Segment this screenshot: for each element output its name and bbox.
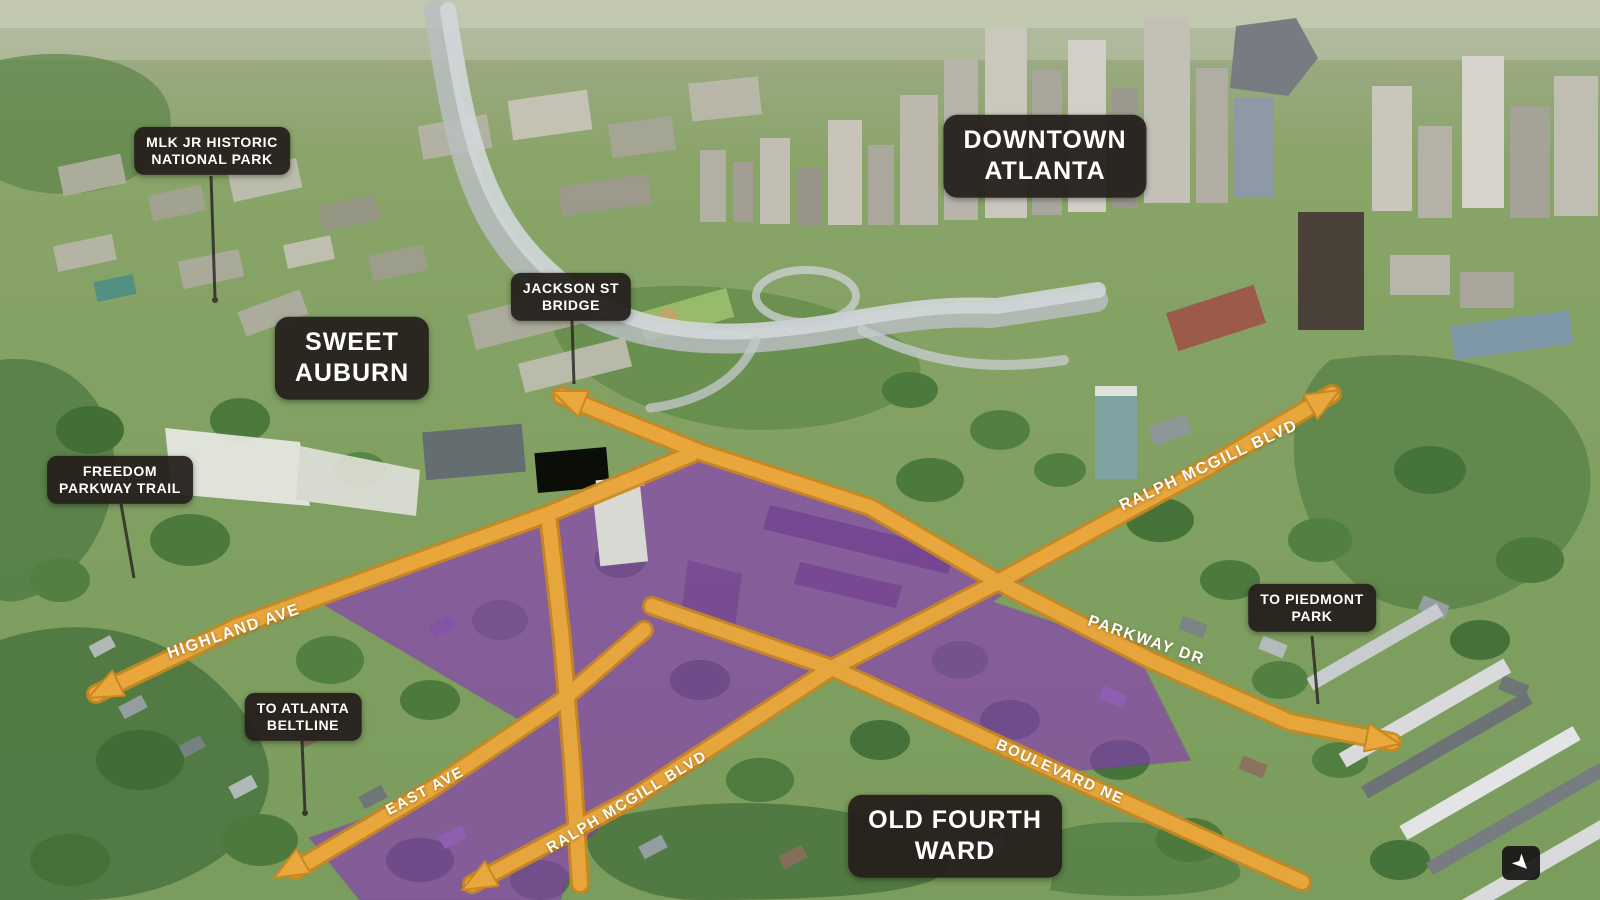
label-to-atlanta-beltline: TO ATLANTA BELTLINE	[245, 693, 362, 741]
aerial-map: MLK JR HISTORIC NATIONAL PARK DOWNTOWN A…	[0, 0, 1600, 900]
label-jackson-st-bridge: JACKSON ST BRIDGE	[511, 273, 631, 321]
downtown-skyline	[700, 18, 1598, 360]
pointer-jackson	[572, 320, 574, 384]
label-sweet-auburn: SWEET AUBURN	[275, 317, 429, 400]
se-arrow-badge: ➤	[1502, 846, 1540, 880]
pointer-freedom	[121, 504, 134, 578]
se-arrow-icon: ➤	[1507, 849, 1535, 877]
label-downtown-atlanta: DOWNTOWN ATLANTA	[943, 115, 1146, 198]
label-freedom-parkway-trail: FREEDOM PARKWAY TRAIL	[47, 456, 193, 504]
pointer-piedmont	[1312, 636, 1318, 704]
label-mlk-park: MLK JR HISTORIC NATIONAL PARK	[134, 127, 290, 175]
pointer-beltline	[302, 741, 305, 812]
label-old-fourth-ward: OLD FOURTH WARD	[848, 795, 1062, 878]
label-to-piedmont-park: TO PIEDMONT PARK	[1248, 584, 1376, 632]
